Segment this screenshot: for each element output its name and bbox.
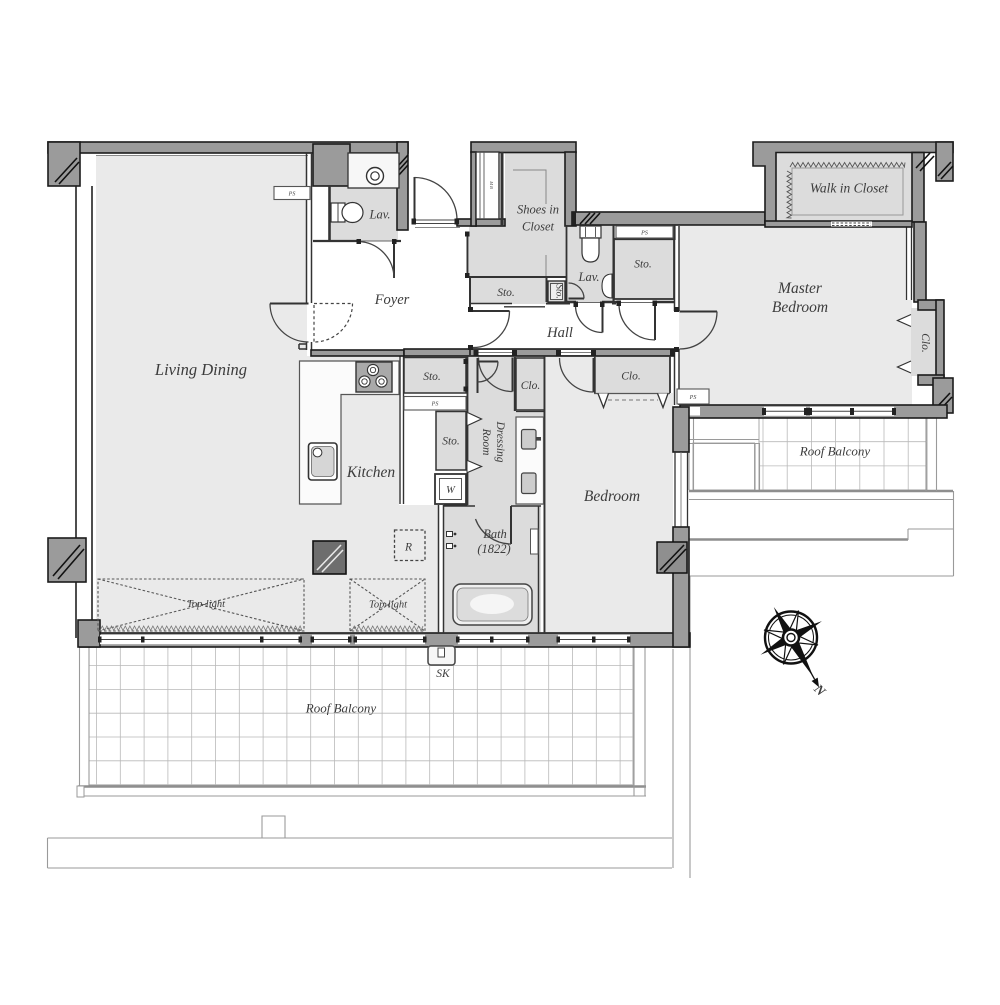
svg-text:Top-light: Top-light (369, 600, 408, 611)
svg-text:Kitchen: Kitchen (346, 464, 395, 481)
svg-text:Bedroom: Bedroom (772, 299, 828, 316)
svg-text:W: W (446, 485, 456, 496)
svg-text:Bedroom: Bedroom (584, 488, 640, 505)
svg-text:Top-light: Top-light (187, 599, 226, 610)
svg-text:SK: SK (436, 668, 451, 680)
svg-text:PS: PS (689, 395, 697, 401)
svg-text:Shoes in: Shoes in (517, 203, 559, 217)
svg-text:Master: Master (777, 280, 823, 297)
svg-text:Clo.: Clo. (919, 333, 931, 353)
svg-text:PS: PS (288, 192, 296, 198)
svg-text:Sto.: Sto. (423, 371, 441, 383)
svg-text:Walk in Closet: Walk in Closet (810, 181, 890, 196)
svg-text:Roof Balcony: Roof Balcony (799, 444, 871, 459)
svg-text:Dressing: Dressing (494, 420, 506, 462)
svg-text:Clo.: Clo. (621, 371, 641, 383)
svg-text:M B: M B (489, 180, 494, 189)
svg-text:Sto.: Sto. (442, 436, 460, 448)
svg-text:PS: PS (431, 402, 439, 408)
svg-text:Sto.: Sto. (497, 287, 515, 299)
svg-text:Hall: Hall (546, 325, 573, 341)
svg-text:Sto.: Sto. (634, 259, 652, 271)
svg-text:Clo.: Clo. (521, 380, 541, 392)
svg-text:Living Dining: Living Dining (154, 360, 247, 379)
svg-text:Foyer: Foyer (374, 292, 410, 308)
svg-text:Closet: Closet (522, 220, 554, 234)
svg-text:Lav.: Lav. (578, 270, 600, 284)
svg-text:Room: Room (480, 428, 492, 456)
svg-text:Lav.: Lav. (369, 208, 391, 222)
svg-text:PS: PS (640, 231, 648, 237)
svg-text:Roof Balcony: Roof Balcony (305, 701, 377, 716)
svg-text:(1822): (1822) (477, 542, 510, 556)
svg-text:Bath: Bath (483, 527, 507, 541)
svg-text:Sto.: Sto. (554, 284, 564, 299)
svg-text:R: R (404, 542, 412, 554)
